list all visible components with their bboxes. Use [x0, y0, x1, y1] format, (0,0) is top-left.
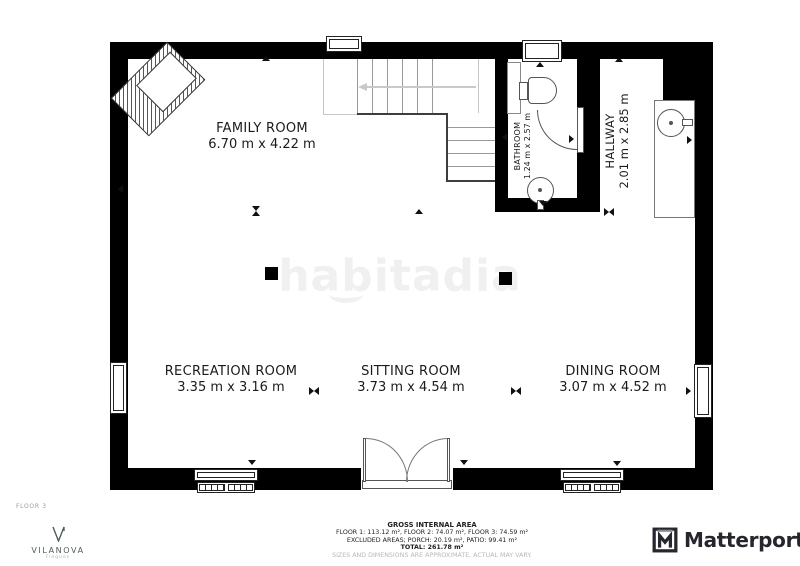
agency-name: VILANOVA: [28, 546, 88, 555]
matterport-logo: Matterport: [652, 527, 800, 553]
floor-plan-page: habitadia: [0, 0, 800, 566]
door-leaf: [363, 438, 366, 482]
door-arc: [406, 438, 448, 482]
room-name: HALLWAY: [603, 93, 617, 188]
room-label-dining-room: DINING ROOM 3.07 m x 4.52 m: [502, 364, 724, 396]
dimension-marker: [415, 209, 423, 214]
room-dims: 3.07 m x 4.52 m: [502, 380, 724, 396]
room-dims: 2.01 m x 2.85 m: [617, 93, 631, 188]
room-dims: 1.24 m x 2.57 m: [523, 113, 533, 179]
radiator: [563, 482, 621, 493]
room-label-bathroom: BATHROOM 1.24 m x 2.57 m: [513, 113, 533, 179]
dimension-marker: [569, 135, 574, 143]
room-name: FAMILY ROOM: [150, 121, 374, 137]
dimension-marker: [252, 206, 260, 216]
stair-direction-arrow-icon: [358, 83, 367, 91]
window: [522, 40, 562, 62]
room-name: DINING ROOM: [502, 364, 724, 380]
column-post: [499, 272, 512, 285]
dimension-marker: [502, 133, 507, 141]
area-title: GROSS INTERNAL AREA: [282, 521, 582, 529]
toilet-cistern: [519, 82, 528, 100]
room-label-family-room: FAMILY ROOM 6.70 m x 4.22 m: [150, 121, 374, 153]
area-disclaimer: SIZES AND DIMENSIONS ARE APPROXIMATE, AC…: [282, 552, 582, 560]
agency-subtitle: Finques: [28, 555, 88, 561]
sink-drain: [538, 188, 542, 192]
toilet-icon: [528, 77, 557, 104]
washbasin-drain: [669, 121, 673, 125]
vilanova-v-icon: [51, 526, 66, 542]
door-arc: [366, 438, 408, 482]
room-dims: 6.70 m x 4.22 m: [150, 137, 374, 153]
stair-direction-line: [366, 86, 476, 88]
dimension-marker: [460, 460, 468, 465]
area-line-excluded: EXCLUDED AREAS; PORCH: 20.19 m², PATIO: …: [282, 537, 582, 545]
room-name: SITTING ROOM: [300, 364, 522, 380]
area-line-floors: FLOOR 1: 113.12 m², FLOOR 2: 74.07 m², F…: [282, 529, 582, 537]
dimension-marker: [536, 62, 544, 67]
area-total: TOTAL: 261.78 m²: [282, 544, 582, 552]
wall-right: [695, 42, 713, 490]
room-name: BATHROOM: [513, 113, 523, 179]
dimension-marker: [687, 136, 692, 144]
column-post: [265, 267, 278, 280]
bathroom-door-leaf: [577, 107, 584, 153]
dimension-marker: [613, 461, 621, 466]
area-summary: GROSS INTERNAL AREA FLOOR 1: 113.12 m², …: [282, 521, 582, 560]
dimension-marker: [539, 201, 547, 206]
washbasin-tap: [682, 119, 693, 126]
dimension-marker: [118, 185, 123, 193]
room-label-sitting-room: SITTING ROOM 3.73 m x 4.54 m: [300, 364, 522, 396]
room-dims: 3.73 m x 4.54 m: [300, 380, 522, 396]
bathroom-door-arc: [537, 110, 577, 150]
window: [560, 469, 624, 481]
dimension-marker: [615, 57, 623, 62]
dimension-marker: [248, 460, 256, 465]
door-leaf: [447, 438, 450, 482]
dimension-marker: [604, 208, 614, 216]
wall-right-top-block: [663, 59, 713, 103]
window: [194, 469, 258, 481]
room-label-hallway: HALLWAY 2.01 m x 2.85 m: [603, 93, 631, 188]
dimension-marker: [262, 56, 270, 61]
window: [326, 36, 362, 52]
agency-logo: VILANOVA Finques: [28, 526, 88, 561]
matterport-wordmark: Matterport: [684, 528, 800, 552]
matterport-icon: [652, 527, 678, 553]
watermark-arc-icon: [329, 286, 363, 303]
radiator: [197, 482, 255, 493]
floor-label: FLOOR 3: [16, 503, 47, 510]
watermark-text: habitadia: [278, 251, 522, 302]
